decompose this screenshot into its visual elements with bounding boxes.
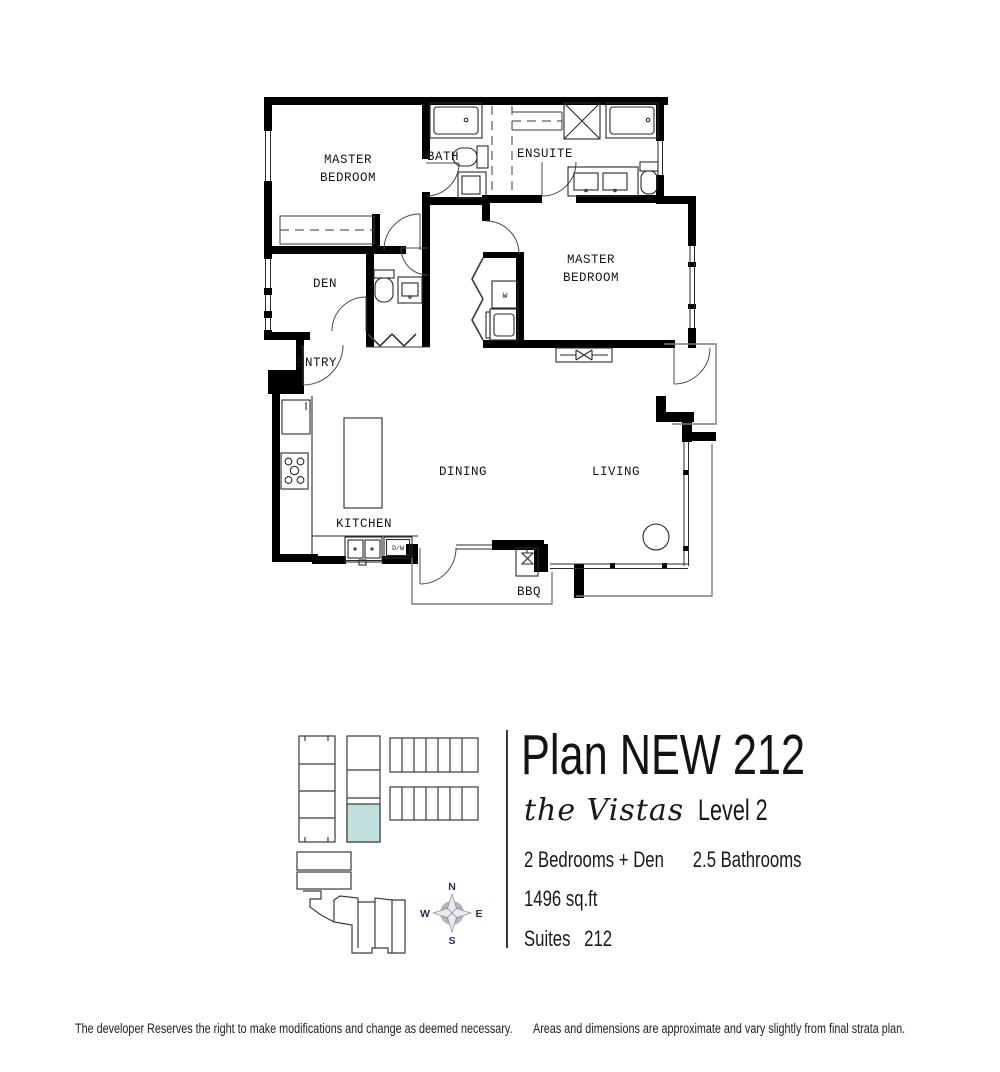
suite-number: 212 (584, 926, 612, 951)
island-icon (344, 418, 382, 508)
project-name: the Vistas (524, 793, 684, 828)
label-master1-line1: MASTER (324, 153, 372, 167)
keyplan-highlight-unit (347, 804, 380, 842)
suites-label: Suites (524, 926, 570, 951)
room-labels: MASTER BEDROOM BATH ENSUITE MASTER BEDRO… (297, 147, 640, 599)
label-den: DEN (313, 277, 337, 291)
label-master2-line1: MASTER (567, 253, 615, 267)
area-label: 1496 sq.ft (524, 886, 597, 912)
ensuite-toilet-icon (640, 162, 658, 194)
plan-title: Plan NEW 212 (521, 722, 805, 788)
keyplan-bottom-cluster (297, 852, 405, 953)
fridge-icon (282, 400, 310, 434)
label-dining: DINING (439, 465, 487, 479)
keyplan-tower-2 (347, 736, 380, 842)
compass-icon: N E S W (420, 881, 482, 947)
keyplan-row-2 (390, 787, 478, 820)
label-bath: BATH (427, 150, 459, 164)
ensuite-vanity-icon (568, 167, 638, 196)
floorplan-sheet: MASTER BEDROOM BATH ENSUITE MASTER BEDRO… (0, 0, 1000, 1072)
label-washer: W (503, 292, 508, 301)
ensuite-tub-icon (606, 103, 658, 138)
info-divider (506, 730, 508, 948)
bathtub-icon (430, 103, 482, 138)
keyplan-tower-1 (299, 736, 335, 842)
powder-toilet-icon (374, 270, 394, 302)
level-label: Level 2 (698, 794, 768, 828)
shower-stall-icon (458, 172, 486, 198)
stove-icon (281, 453, 308, 489)
bathrooms-label: 2.5 Bathrooms (693, 847, 802, 872)
label-bbq: BBQ (517, 585, 541, 599)
label-master1-line2: BEDROOM (320, 171, 376, 185)
label-ensuite: ENSUITE (517, 147, 573, 161)
washer-dryer-icon (486, 281, 518, 340)
label-living: LIVING (592, 465, 640, 479)
disclaimer-left: The developer Reserves the right to make… (75, 1021, 512, 1036)
disclaimer-right: Areas and dimensions are approximate and… (533, 1021, 905, 1036)
label-entry: ENTRY (297, 356, 337, 370)
ensuite-shower-icon (564, 103, 600, 139)
bedrooms-label: 2 Bedrooms + Den (524, 847, 664, 872)
suites-row: Suites212 (524, 926, 612, 952)
compass-east-label: E (475, 908, 482, 920)
label-dishwasher: D/W (392, 545, 404, 552)
label-kitchen: KITCHEN (336, 517, 392, 531)
specs-row: 2 Bedrooms + Den2.5 Bathrooms (524, 847, 801, 873)
compass-north-label: N (448, 881, 456, 893)
label-master2-line2: BEDROOM (563, 271, 619, 285)
compass-west-label: W (420, 908, 430, 920)
keyplan-row-1 (390, 738, 478, 772)
powder-vanity-icon (398, 277, 422, 303)
column-icon (643, 524, 669, 550)
compass-south-label: S (448, 935, 455, 947)
project-level-row: the Vistas Level 2 (524, 793, 795, 828)
floorplan-drawing: MASTER BEDROOM BATH ENSUITE MASTER BEDRO… (0, 0, 1000, 1072)
fireplace-icon (556, 348, 612, 362)
